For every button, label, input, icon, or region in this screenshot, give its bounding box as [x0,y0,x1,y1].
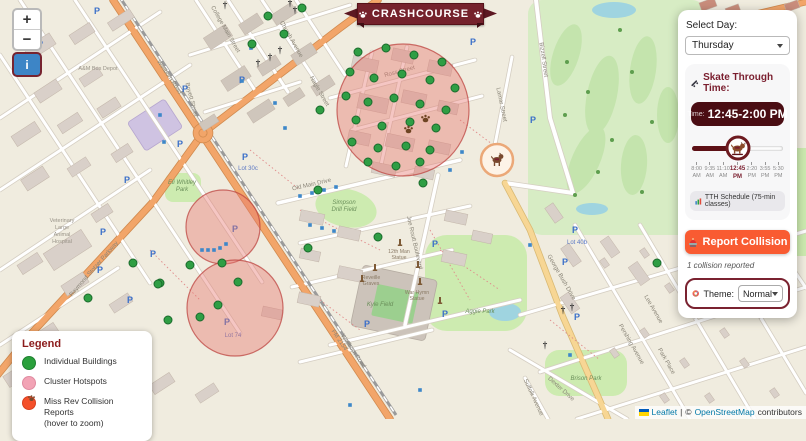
legend-rows: Individual BuildingsCluster HotspotsMiss… [22,356,142,429]
transit-dot [310,191,314,195]
church-cross-icon: † [293,5,298,15]
parking-label: P [562,257,568,267]
sidebar-panel: Select Day: Thursday Skate Through Time:… [678,10,797,318]
transit-dot [348,403,352,407]
theme-label: Theme: [703,289,734,299]
cluster-hotspot[interactable] [187,260,283,356]
map-label: Statue [410,296,425,302]
slider-tick[interactable]: 12:45PM [730,162,745,181]
building-marker[interactable] [426,76,434,84]
monument-icon [399,239,401,245]
monument-icon [419,278,421,284]
tick-mark [751,162,752,165]
transit-dot [320,226,324,230]
parking-label: P [572,225,578,235]
legend-marker [22,376,36,390]
attribution-bar: Leaflet | © OpenStreetMap contributors [635,406,806,419]
transit-dot [158,113,162,117]
tree [573,193,577,197]
building-marker[interactable] [346,68,354,76]
legend-item: Miss Rev Collision Reports(hover to zoom… [22,396,142,429]
map-label: Park [176,187,189,193]
schedule-note: TTH Schedule (75-min classes) [705,194,780,208]
building-marker[interactable] [304,244,312,252]
transit-dot [206,248,210,252]
building-marker[interactable] [438,58,446,66]
building-marker[interactable] [442,106,450,114]
map-area [657,87,679,143]
map-label: Eli Whitley [168,180,197,186]
parking-label: P [100,227,106,237]
building-marker[interactable] [406,118,414,126]
church-cross-icon: † [223,0,228,10]
crashcourse-banner: CRASHCOURSE [344,3,497,26]
building-marker[interactable] [234,278,242,286]
select-day-label: Select Day: [686,20,790,31]
attribution-copy: © [685,407,691,417]
building-marker[interactable] [342,92,350,100]
building-marker[interactable] [84,294,92,302]
transit-dot [332,229,336,233]
building-marker[interactable] [154,280,162,288]
time-display[interactable]: Time: 12:45-2:00 PM [691,102,784,126]
transit-dot [224,242,228,246]
skate-title: Skate Through Time: [703,72,785,94]
slider-tick[interactable]: 9:35AM [703,162,716,181]
day-select-value: Thursday [692,40,734,51]
report-collision-label: Report Collision [703,236,788,248]
report-collision-button[interactable]: Report Collision [685,230,790,254]
church-cross-icon: † [256,58,261,68]
church-cross-icon: † [543,340,548,350]
building-marker[interactable] [370,74,378,82]
legend-item: Cluster Hotspots [22,376,142,390]
building-marker[interactable] [196,313,204,321]
building-marker[interactable] [364,158,372,166]
monument-base [418,284,422,286]
monument-icon [439,297,441,303]
building-marker[interactable] [164,316,172,324]
map-label: Brison Park [570,376,602,382]
transit-dot [273,101,277,105]
transit-dot [334,185,338,189]
building-marker[interactable] [402,142,410,150]
building-marker[interactable] [432,124,440,132]
building-marker[interactable] [416,100,424,108]
chevron-down-icon [777,44,783,48]
parking-label: P [94,6,100,16]
map-label: Veterinary [50,218,75,224]
collision-count-note: 1 collision reported [687,261,790,270]
monument-base [373,270,377,272]
transit-dot [308,223,312,227]
building-marker[interactable] [419,179,427,187]
map-area [796,148,806,256]
building-marker[interactable] [410,51,418,59]
building-marker[interactable] [314,186,322,194]
info-button[interactable]: i [12,52,42,77]
building-marker[interactable] [378,122,386,130]
building-marker[interactable] [398,70,406,78]
cluster-hotspot[interactable] [186,190,260,264]
paw-icon [473,10,483,19]
tree [565,60,569,64]
monument-base [398,245,402,247]
building-marker[interactable] [248,40,256,48]
transit-dot [568,353,572,357]
time-value: 12:45-2:00 PM [708,107,788,121]
map-label: Hospital [52,239,72,245]
parking-label: P [150,249,156,259]
building-marker[interactable] [416,158,424,166]
zoom-in-button[interactable]: + [14,10,40,29]
building-marker[interactable] [214,301,222,309]
building-marker[interactable] [348,138,356,146]
tree [618,28,622,32]
transit-dot [298,194,302,198]
transit-dot [200,248,204,252]
map-label: A&M Bus Depot [78,66,118,72]
map-label: Lot 30c [238,166,258,172]
parking-label: P [124,175,130,185]
building-marker[interactable] [264,12,272,20]
slider-handle-reveille[interactable] [725,136,750,161]
theme-select[interactable]: Normal [738,285,783,302]
building-marker[interactable] [392,162,400,170]
parking-label: P [242,152,248,162]
church-cross-icon: † [278,45,283,55]
building-marker[interactable] [186,261,194,269]
parking-label: P [442,309,448,319]
church-cross-icon: † [570,302,575,312]
chevron-down-icon [772,292,778,296]
slider-ticks: 8:00AM9:35AM11:10AM12:45PM2:20PM3:55PM5:… [690,162,785,181]
map-label: Lot 40b [567,240,588,246]
monument-base [416,267,420,269]
tree [563,113,567,117]
parking-label: P [530,115,536,125]
building-marker[interactable] [129,259,137,267]
map-label: Animal [54,232,71,238]
theme-select-value: Normal [743,289,772,299]
monument-icon [374,264,376,270]
building-marker[interactable] [382,44,390,52]
monument-base [360,281,364,283]
building-marker[interactable] [451,84,459,92]
transit-dot [240,79,244,83]
parking-label: P [127,295,133,305]
tree [630,70,634,74]
map-label: Large [55,225,69,231]
map-label: Simpson [332,200,356,206]
tree [586,90,590,94]
slider-tick[interactable]: 2:20PM [745,162,758,181]
parking-label: P [182,84,188,94]
tree [650,120,654,124]
legend-marker [22,396,36,410]
building-marker[interactable] [653,259,661,267]
parking-label: P [97,265,103,275]
legend-label: Miss Rev Collision Reports(hover to zoom… [44,396,142,429]
building-marker[interactable] [354,48,362,56]
building-marker[interactable] [374,233,382,241]
legend-item: Individual Buildings [22,356,142,370]
legend-label: Individual Buildings [44,356,117,367]
transit-dot [460,150,464,154]
osm-link[interactable]: OpenStreetMap [695,407,755,417]
parking-label: P [364,319,370,329]
zoom-control: + − [12,8,42,51]
monument-icon [417,261,419,267]
ukraine-flag-icon [639,409,649,416]
map-label: Graves [363,281,380,287]
skate-title-row: Skate Through Time: [690,72,785,94]
tree [596,170,600,174]
tick-mark [778,162,779,165]
church-cross-icon: † [561,305,566,315]
skate-through-time-card: Skate Through Time: Time: 12:45-2:00 PM [685,64,790,220]
time-slider [692,135,783,161]
building-marker[interactable] [352,116,360,124]
paw-icon [27,394,36,402]
day-select[interactable]: Thursday [685,36,790,55]
schedule-badge: TTH Schedule (75-min classes) [690,191,785,211]
map-area [576,203,608,215]
slider-tick[interactable]: 8:00AM [690,162,703,181]
legend-label: Cluster Hotspots [44,376,107,387]
parking-label: P [432,239,438,249]
map-label: Kyle Field [367,302,394,308]
parking-label: P [470,37,476,47]
theme-box: Theme: Normal [685,278,790,309]
building-marker[interactable] [374,144,382,152]
schedule-chart-icon [695,197,702,206]
building-marker[interactable] [364,98,372,106]
building-marker[interactable] [426,146,434,154]
siren-icon [688,237,698,248]
slider-tick[interactable]: 3:55PM [758,162,771,181]
transit-dot [528,243,532,247]
monument-base [438,303,442,305]
legend-marker [22,356,36,370]
leaflet-link[interactable]: Leaflet [652,407,678,417]
reveille-dog-icon [729,141,746,156]
tree [610,138,614,142]
palette-icon [692,288,699,299]
transit-dot [283,126,287,130]
map-area [592,2,636,18]
paw-icon [358,10,368,19]
zoom-out-button[interactable]: − [14,30,40,49]
tick-mark [709,162,710,165]
tick-mark [737,162,738,165]
building-marker[interactable] [298,4,306,12]
attribution-sep: | [680,407,682,417]
building-marker[interactable] [390,94,398,102]
transit-dot [418,388,422,392]
building-marker[interactable] [316,106,324,114]
transit-dot [218,246,222,250]
map-label: Aggie Park [464,309,495,315]
transit-dot [322,188,326,192]
tick-mark [723,162,724,165]
transit-dot [162,140,166,144]
church-cross-icon: † [268,52,273,62]
slider-tick[interactable]: 11:10AM [717,162,730,181]
transit-dot [212,248,216,252]
parking-label: P [574,312,580,322]
building-marker[interactable] [218,259,226,267]
tick-mark [765,162,766,165]
parking-label: P [177,139,183,149]
map-label: Drill Field [331,207,357,213]
legend-title: Legend [22,338,142,350]
slider-tick[interactable]: 5:30PM [772,162,785,181]
transit-dot [448,168,452,172]
time-label: Time: [687,111,704,118]
legend-panel: Legend Individual BuildingsCluster Hotsp… [12,331,152,441]
tick-mark [696,162,697,165]
monument-icon [361,275,363,281]
attribution-rest: contributors [758,407,802,417]
map-label: Statue [392,255,407,261]
skateboard-icon [690,78,699,89]
banner-title: CRASHCOURSE [372,8,469,20]
building-marker[interactable] [280,30,288,38]
tree [640,190,644,194]
